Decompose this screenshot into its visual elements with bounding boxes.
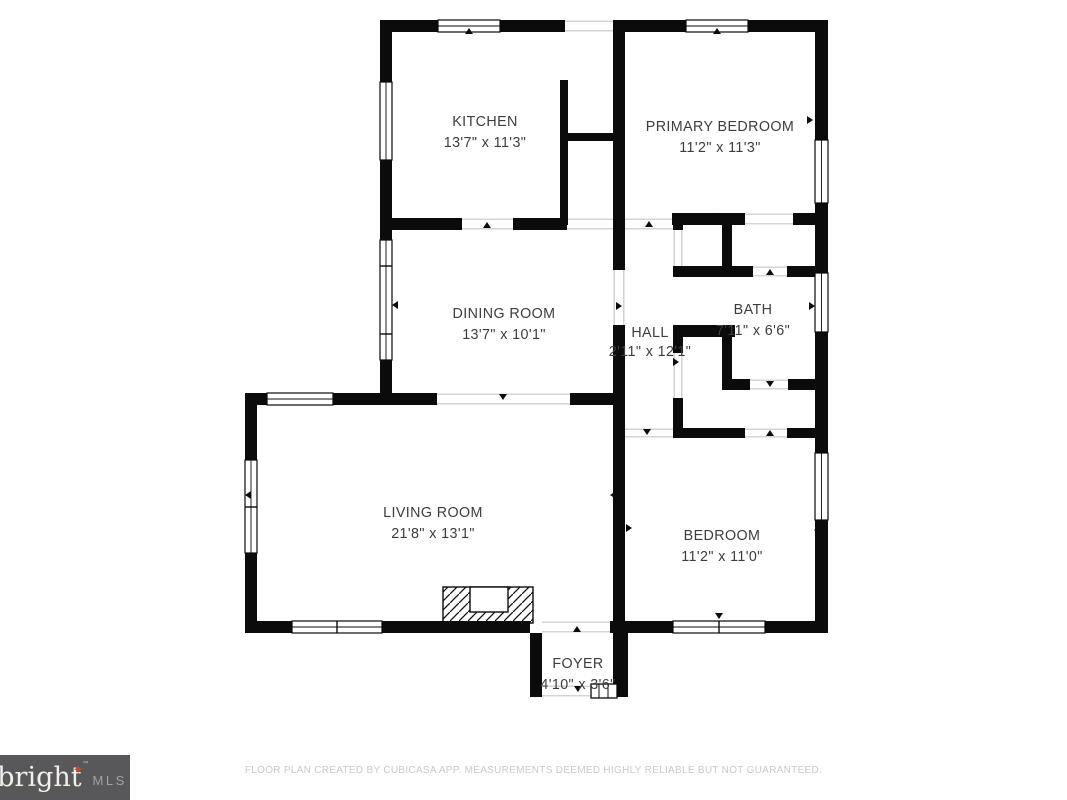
wall (628, 621, 673, 633)
room-label-foyer: FOYER (552, 656, 603, 672)
wall (380, 218, 462, 230)
door-marker-right-icon (616, 302, 622, 310)
floor-plan-page: KITCHEN13'7" x 11'3"PRIMARY BEDROOM11'2"… (0, 0, 1067, 800)
wall (560, 80, 568, 225)
room-dims-hall: 2'11" x 12'1" (609, 344, 692, 360)
room-label-bath: BATH (734, 302, 773, 318)
door-marker-up-icon (766, 269, 774, 275)
door-marker-down-icon (766, 381, 774, 387)
room-label-primary-bedroom: PRIMARY BEDROOM (646, 119, 794, 135)
wall (673, 266, 753, 277)
wall (513, 218, 567, 230)
wall (722, 213, 732, 268)
floorplan-disclaimer: FLOOR PLAN CREATED BY CUBICASA APP. MEAS… (0, 765, 1067, 776)
wall (610, 621, 628, 633)
door-marker-down-icon (715, 613, 723, 619)
room-dims-primary-bedroom: 11'2" x 11'3" (679, 140, 761, 156)
room-label-bedroom: BEDROOM (684, 528, 761, 544)
floor-plan-svg: KITCHEN13'7" x 11'3"PRIMARY BEDROOM11'2"… (0, 0, 1067, 800)
room-label-dining-room: DINING ROOM (453, 306, 556, 322)
wall (815, 20, 828, 140)
wall (673, 428, 745, 438)
door-marker-right-icon (809, 302, 815, 310)
room-label-hall: HALL (631, 325, 668, 341)
room-dims-living-room: 21'8" x 13'1" (391, 526, 475, 542)
door-marker-up-icon (645, 221, 653, 227)
wall (815, 520, 828, 633)
room-dims-kitchen: 13'7" x 11'3" (444, 135, 527, 151)
wall (673, 218, 683, 230)
wall (788, 379, 815, 390)
fireplace-firebox (470, 587, 508, 612)
door-marker-up-icon (483, 222, 491, 228)
wall (333, 393, 437, 405)
wall (815, 332, 828, 453)
wall (613, 325, 625, 625)
door-marker-down-icon (643, 429, 651, 435)
wall (613, 20, 625, 270)
room-label-kitchen: KITCHEN (452, 114, 518, 130)
door-marker-right-icon (626, 524, 632, 532)
room-dims-foyer: 4'10" x 3'6" (540, 677, 615, 693)
door-marker-down-icon (499, 394, 507, 400)
door-marker-right-icon (807, 116, 813, 124)
door-marker-left-icon (392, 301, 398, 309)
wall (765, 621, 828, 633)
room-dims-bath: 7'11" x 6'6" (716, 323, 790, 339)
door-marker-up-icon (573, 626, 581, 632)
brightmls-logo: bright ✦ ™ MLS (0, 755, 130, 800)
wall (245, 621, 292, 633)
wall (815, 203, 828, 273)
wall (245, 393, 257, 460)
wall (722, 379, 750, 390)
room-dims-bedroom: 11'2" x 11'0" (681, 549, 763, 565)
room-label-living-room: LIVING ROOM (383, 505, 483, 521)
room-dims-dining-room: 13'7" x 10'1" (462, 327, 546, 343)
door-marker-up-icon (766, 430, 774, 436)
wall (500, 20, 565, 32)
wall (570, 393, 625, 405)
